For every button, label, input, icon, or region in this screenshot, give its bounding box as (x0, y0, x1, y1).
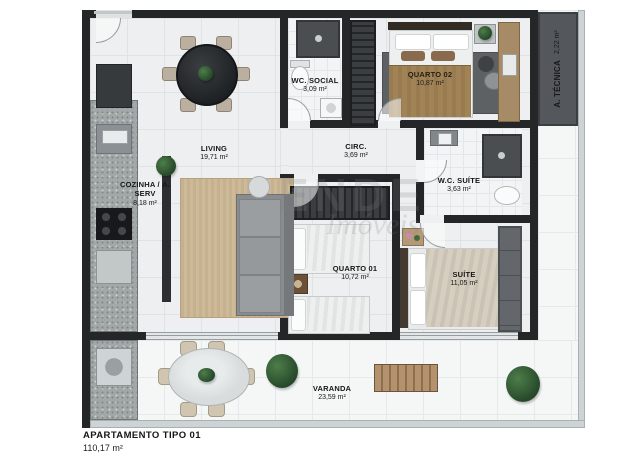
shower-head (315, 35, 322, 42)
room-area: 3,69 m² (332, 151, 380, 160)
room-label: COZINHA / Á. SERV (114, 180, 176, 199)
potted-plant (266, 354, 298, 388)
pouf (478, 56, 494, 72)
room-area: 2,22 m² (553, 30, 562, 54)
floor-plan: A. TÉCNICA 2,22 m² LIVING (82, 10, 585, 428)
wc-social-door-opening (288, 120, 310, 128)
room-label: QUARTO 02 (394, 70, 466, 79)
living-label: LIVING 19,71 m² (178, 144, 250, 163)
shower-head (498, 152, 505, 159)
pillow (410, 290, 426, 325)
wall (82, 10, 530, 18)
room-label: CIRC. (332, 142, 380, 151)
room-area: 8,18 m² (114, 199, 176, 208)
plant (156, 156, 176, 176)
shower (482, 134, 522, 178)
room-area: 11,05 m² (434, 279, 494, 288)
single-bed (288, 296, 370, 334)
technical-area: A. TÉCNICA 2,22 m² (538, 12, 578, 126)
suite-label: SUÍTE 11,05 m² (434, 270, 494, 289)
room-label: VARANDA (304, 384, 360, 393)
wc-suite-label: W.C. SUÍTE 3,63 m² (430, 176, 488, 195)
circ-opening (280, 128, 288, 174)
flower-vase (406, 232, 413, 239)
desk (498, 22, 520, 122)
washing-machine (96, 348, 132, 386)
quarto02-label: QUARTO 02 10,87 m² (394, 70, 466, 89)
wc-social-label: WC. SOCIAL 3,09 m² (286, 76, 344, 95)
closet-wardrobe (350, 20, 376, 126)
tv-panel (162, 156, 171, 302)
wc-suite-door-opening (416, 160, 424, 182)
accent-pillow (431, 51, 455, 61)
room-label: WC. SOCIAL (286, 76, 344, 85)
pillow (410, 253, 426, 288)
plan-total-area: 110,17 m² (83, 443, 123, 453)
table-centerpiece-plant (198, 368, 215, 382)
room-area: 23,59 m² (304, 393, 360, 402)
plan-title: APARTAMENTO TIPO 01 (83, 430, 201, 441)
room-label: W.C. SUÍTE (430, 176, 488, 185)
room-area: 10,87 m² (394, 79, 466, 88)
plant (414, 235, 420, 241)
wall (530, 10, 538, 340)
bed-headboard (388, 22, 472, 30)
room-area: 10,72 m² (322, 273, 388, 282)
balcony-railing-right (578, 10, 585, 428)
cooktop (96, 208, 132, 240)
shower (296, 20, 340, 58)
room-area: 3,63 m² (430, 185, 488, 194)
wall (392, 174, 400, 332)
room-label: SUÍTE (434, 270, 494, 279)
bathroom-sink (430, 130, 458, 146)
sofa-cushion (239, 199, 281, 237)
room-area: 19,71 m² (178, 153, 250, 162)
balcony-railing-bottom (90, 420, 585, 428)
room-area: 3,09 m² (286, 85, 344, 94)
wall (82, 10, 90, 428)
bed-duvet (307, 297, 367, 331)
toilet (494, 186, 520, 205)
sliding-door-living (146, 332, 278, 340)
room-label: LIVING (178, 144, 250, 153)
a-tecnica-label: A. TÉCNICA 2,22 m² (538, 12, 578, 126)
quarto01-label: QUARTO 01 10,72 m² (322, 264, 388, 283)
quarto01-door-opening (294, 174, 318, 182)
table-centerpiece-plant (198, 66, 213, 81)
wardrobe (498, 226, 522, 332)
varanda-label: VARANDA 23,59 m² (304, 384, 360, 403)
sliding-door-suite (400, 332, 518, 340)
cozinha-label: COZINHA / Á. SERV 8,18 m² (114, 180, 176, 208)
side-table (248, 176, 270, 198)
pillow (433, 34, 469, 50)
bathroom-sink (320, 98, 342, 118)
room-label: A. TÉCNICA (553, 60, 563, 108)
entry-cabinet (96, 64, 132, 108)
wall (342, 18, 350, 120)
potted-plant (506, 366, 540, 402)
plant (478, 26, 492, 40)
fridge (96, 250, 132, 284)
bed-headboard (400, 248, 408, 328)
quarto02-door-opening (378, 120, 400, 128)
pillow (395, 34, 431, 50)
sofa (236, 194, 294, 316)
sink-bowl (438, 133, 452, 145)
sofa-back (284, 194, 294, 316)
sofa-cushion (239, 237, 281, 275)
kitchen-sink (96, 124, 132, 154)
entry-door-leaf (94, 11, 132, 14)
wooden-bench (374, 364, 438, 392)
sofa-cushion (239, 275, 281, 313)
sink-bowl (102, 130, 128, 144)
circ-label: CIRC. 3,69 m² (332, 142, 380, 161)
room-label: QUARTO 01 (322, 264, 388, 273)
laptop (502, 54, 517, 76)
accent-pillow (401, 51, 425, 61)
suite-door-opening (420, 215, 444, 223)
